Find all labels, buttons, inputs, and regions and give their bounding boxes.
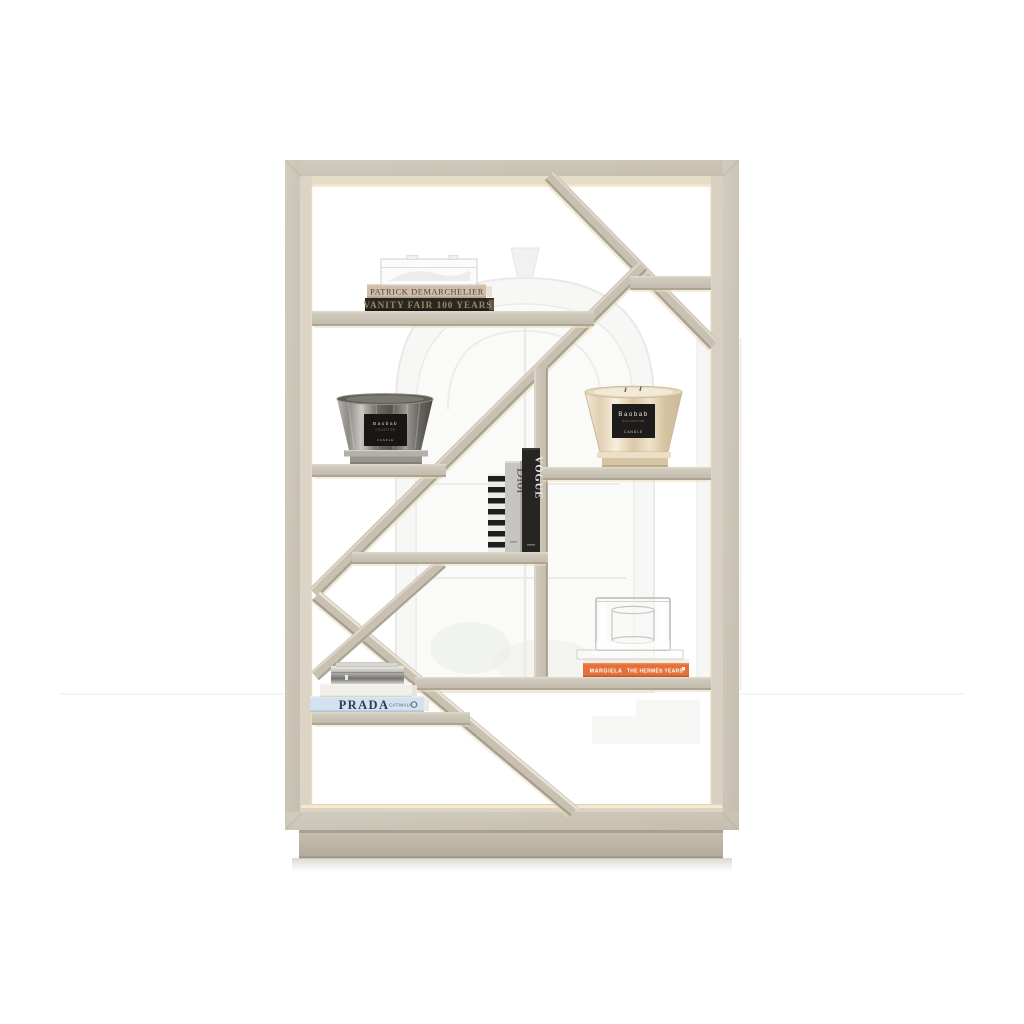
prada-book: PRADA CATWALK [310,696,429,712]
shelf-right-candle [541,467,711,481]
shelf-right-lower [415,677,711,691]
striped-book [488,474,506,552]
frame-top-bar [285,160,739,176]
frame-left-bar [285,160,300,830]
beige-candle-collection: COLLECTION [622,419,645,423]
gray-candle-type: CANDLE [377,438,394,442]
shelf-top-right-short [630,276,711,291]
glass-cube [596,598,670,650]
frame-bottom-led-glow [301,805,722,808]
frame-left-inner-face [300,176,312,814]
gray-candle-collection: COLLECTION [376,429,396,431]
frame-bottom-bar [285,812,739,830]
beige-candle-brand: Baobab [618,412,648,418]
metal-box [331,663,404,685]
prada-title: PRADA [339,698,390,712]
gray-candle: Baobab COLLECTION CANDLE [337,394,433,464]
frame-top-led-glow [301,185,722,188]
prada-subtitle: CATWALK [389,703,413,708]
background-step [592,700,700,744]
acrylic-box [381,256,477,286]
top-book-stack: VANITY FAIR 100 YEARS PATRICK DEMARCHELI… [364,256,494,312]
shelf-bottom-left [312,712,470,726]
arch-keystone [511,248,539,276]
vogue-title: VOGUE [533,456,544,499]
floor-contact-shadow [292,858,732,872]
demarchelier-title: PATRICK DEMARCHELIER [370,288,484,297]
bookshelf-product-render: VANITY FAIR 100 YEARS PATRICK DEMARCHELI… [0,0,1024,1024]
demarchelier-book: PATRICK DEMARCHELIER [367,284,492,298]
beige-candle-type: CANDLE [624,430,643,434]
margiela-book: MARGIELA THE HERMÈS YEARS [583,659,689,677]
shelf-middle [352,552,548,565]
margiela-subtitle: THE HERMÈS YEARS [627,667,683,675]
plinth-bottom-edge [299,857,723,859]
margiela-brand: MARGIELA [590,669,623,675]
gray-candle-brand: Baobab [373,421,398,427]
vanity-fair-title: VANITY FAIR 100 YEARS [364,300,493,310]
shelf-top-left [312,311,594,327]
vanity-fair-book: VANITY FAIR 100 YEARS [364,298,494,311]
white-book [320,683,417,697]
glass-slab [577,650,683,659]
shelf-left-candle [312,464,446,478]
frame-right-inner-face [711,176,723,814]
beige-candle: Baobab COLLECTION CANDLE [585,386,682,467]
plinth-top-shadow [299,830,723,833]
plinth-base [299,830,723,858]
product-image-canvas: VANITY FAIR 100 YEARS PATRICK DEMARCHELI… [0,0,1024,1024]
frame-right-bar [723,160,739,830]
